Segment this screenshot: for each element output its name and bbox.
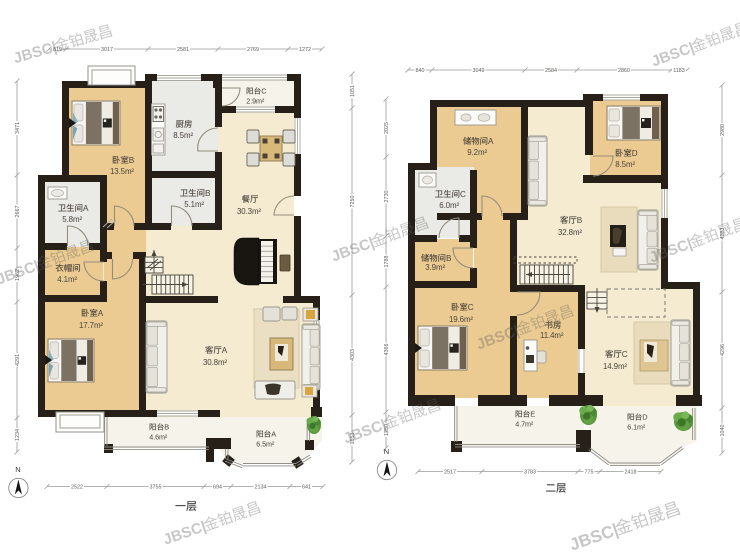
svg-text:2667: 2667	[15, 206, 21, 218]
svg-text:4303: 4303	[350, 349, 356, 361]
svg-text:1183: 1183	[673, 68, 685, 74]
svg-text:2025: 2025	[384, 122, 390, 134]
svg-text:32.8m²: 32.8m²	[558, 228, 582, 237]
svg-text:2730: 2730	[384, 191, 390, 203]
svg-text:1234: 1234	[15, 429, 21, 441]
svg-text:A: A	[271, 430, 276, 439]
svg-text:30.3m²: 30.3m²	[237, 207, 261, 216]
svg-text:11.4m²: 11.4m²	[540, 331, 564, 340]
svg-text:B: B	[164, 423, 169, 432]
svg-text:775: 775	[585, 470, 594, 476]
svg-text:5.1m²: 5.1m²	[184, 200, 204, 209]
svg-text:1051: 1051	[350, 85, 356, 97]
svg-text:2860: 2860	[618, 68, 630, 74]
svg-text:1788: 1788	[384, 256, 390, 268]
svg-text:C: C	[261, 87, 267, 96]
svg-text:6.5m²: 6.5m²	[256, 440, 275, 449]
svg-text:2522: 2522	[71, 485, 83, 491]
svg-text:B: B	[577, 216, 583, 225]
svg-text:4.7m²: 4.7m²	[515, 420, 534, 429]
svg-text:E: E	[530, 410, 535, 419]
svg-text:694: 694	[213, 485, 222, 491]
svg-text:B: B	[129, 156, 135, 165]
svg-text:9.2m²: 9.2m²	[467, 148, 487, 157]
svg-text:3783: 3783	[524, 470, 536, 476]
svg-text:2517: 2517	[444, 470, 456, 476]
svg-text:B: B	[446, 254, 452, 263]
svg-text:19.6m²: 19.6m²	[449, 315, 473, 324]
svg-text:6.0m²: 6.0m²	[439, 201, 459, 210]
svg-text:C: C	[468, 303, 474, 312]
svg-text:2584: 2584	[545, 68, 557, 74]
svg-text:2581: 2581	[177, 47, 189, 53]
svg-text:A: A	[83, 204, 89, 213]
svg-text:3049: 3049	[473, 68, 485, 74]
svg-text:840: 840	[416, 68, 425, 74]
svg-text:4296: 4296	[720, 344, 726, 356]
svg-text:C: C	[460, 190, 466, 199]
svg-text:17.7m²: 17.7m²	[79, 321, 103, 330]
svg-text:2418: 2418	[625, 470, 637, 476]
svg-text:14.9m²: 14.9m²	[603, 362, 627, 371]
svg-text:13.5m²: 13.5m²	[110, 167, 134, 176]
svg-text:7250: 7250	[350, 196, 356, 208]
svg-text:641: 641	[302, 485, 311, 491]
svg-text:4366: 4366	[384, 344, 390, 356]
svg-text:4291: 4291	[15, 354, 21, 366]
svg-text:N: N	[15, 465, 20, 474]
svg-text:5.8m²: 5.8m²	[62, 215, 82, 224]
svg-text:1040: 1040	[720, 425, 726, 437]
svg-text:3471: 3471	[15, 122, 21, 134]
svg-text:A: A	[222, 346, 228, 355]
svg-text:D: D	[642, 413, 647, 422]
svg-text:N: N	[384, 447, 389, 456]
svg-text:C: C	[622, 350, 628, 359]
svg-text:3017: 3017	[101, 47, 113, 53]
svg-text:8.5m²: 8.5m²	[615, 160, 635, 169]
svg-text:3755: 3755	[150, 485, 162, 491]
svg-text:D: D	[632, 149, 638, 158]
svg-text:2769: 2769	[247, 47, 259, 53]
svg-text:2134: 2134	[255, 485, 267, 491]
svg-text:2.9m²: 2.9m²	[246, 97, 265, 106]
svg-text:1272: 1272	[299, 47, 311, 53]
svg-text:6.1m²: 6.1m²	[627, 423, 646, 432]
svg-text:2980: 2980	[720, 124, 726, 136]
svg-text:30.8m²: 30.8m²	[203, 358, 227, 367]
svg-text:A: A	[488, 137, 494, 146]
svg-text:3.9m²: 3.9m²	[425, 263, 445, 272]
svg-text:4.1m²: 4.1m²	[57, 275, 77, 284]
svg-text:4.6m²: 4.6m²	[149, 433, 168, 442]
svg-text:8.5m²: 8.5m²	[173, 131, 193, 140]
svg-text:A: A	[98, 309, 104, 318]
svg-text:B: B	[205, 189, 211, 198]
